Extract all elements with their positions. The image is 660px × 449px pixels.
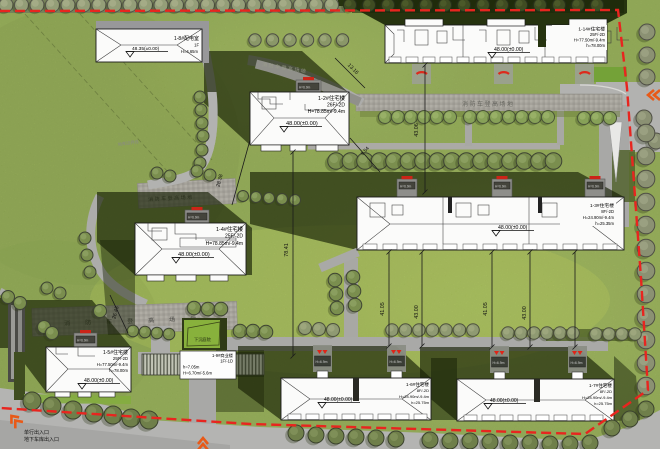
- svg-text:H=77.50m/-9.4m: H=77.50m/-9.4m: [97, 362, 129, 367]
- svg-text:1-4#住宅楼: 1-4#住宅楼: [216, 225, 244, 233]
- svg-text:H=24.90m/-9.4m: H=24.90m/-9.4m: [582, 395, 613, 400]
- svg-text:25F/-2D: 25F/-2D: [113, 356, 128, 361]
- svg-text:8F/-2D: 8F/-2D: [601, 209, 614, 214]
- svg-text:h=25.35m: h=25.35m: [595, 221, 614, 226]
- svg-text:地下车库出入口: 地下车库出入口: [24, 436, 59, 443]
- svg-text:h=25.75m: h=25.75m: [411, 400, 430, 405]
- svg-text:H=24.90m/-9.4m: H=24.90m/-9.4m: [399, 394, 430, 399]
- svg-text:48.00(±0.00): 48.00(±0.00): [498, 225, 528, 231]
- svg-text:1-5#住宅楼: 1-5#住宅楼: [103, 349, 128, 356]
- svg-text:H=77.50m/-9.4m: H=77.50m/-9.4m: [574, 38, 606, 43]
- svg-text:H=78.85m/-9.4m: H=78.85m/-9.4m: [206, 241, 243, 247]
- svg-text:下沉庭院: 下沉庭院: [194, 336, 212, 343]
- svg-text:h=78.00m: h=78.00m: [109, 368, 128, 373]
- svg-text:H=6.70m/-5.6m: H=6.70m/-5.6m: [183, 371, 212, 376]
- svg-text:消防车登高场地: 消防车登高场地: [462, 100, 515, 108]
- svg-text:48.00(±0.00): 48.00(±0.00): [84, 378, 114, 384]
- svg-text:78.41: 78.41: [284, 243, 290, 257]
- svg-text:8F/-2D: 8F/-2D: [600, 389, 612, 394]
- svg-text:8F/-2D: 8F/-2D: [417, 388, 429, 393]
- svg-text:H=78.85m/-9.4m: H=78.85m/-9.4m: [308, 109, 345, 115]
- svg-text:单行出入口: 单行出入口: [24, 429, 49, 436]
- svg-text:h=7.05m: h=7.05m: [183, 365, 200, 370]
- svg-text:48.00(±0.00): 48.00(±0.00): [324, 397, 353, 403]
- svg-text:H=4.65m: H=4.65m: [181, 49, 199, 54]
- svg-text:H=6.9m: H=6.9m: [299, 86, 311, 90]
- svg-text:H=6.9m: H=6.9m: [400, 185, 412, 189]
- svg-text:48.35(±0.00): 48.35(±0.00): [132, 46, 160, 52]
- svg-text:H=6.9m: H=6.9m: [495, 185, 507, 189]
- svg-text:48.00(±0.00): 48.00(±0.00): [490, 398, 519, 404]
- svg-text:25F/-2D: 25F/-2D: [590, 32, 605, 37]
- svg-text:43.00: 43.00: [522, 306, 528, 320]
- svg-text:1-6#住宅楼: 1-6#住宅楼: [406, 381, 429, 388]
- svg-text:H=6.9m: H=6.9m: [77, 339, 89, 343]
- svg-text:48.00(±0.00): 48.00(±0.00): [286, 121, 318, 127]
- svg-text:H=6.9m: H=6.9m: [390, 360, 402, 364]
- svg-text:1F: 1F: [194, 43, 199, 48]
- svg-text:H=6.9m: H=6.9m: [493, 361, 505, 365]
- svg-text:48.00(±0.00): 48.00(±0.00): [178, 252, 210, 258]
- svg-text:25F/-2D: 25F/-2D: [225, 234, 243, 240]
- svg-text:48.00(±0.00): 48.00(±0.00): [494, 47, 524, 53]
- svg-text:41.05: 41.05: [483, 302, 489, 316]
- svg-text:H=6.9m: H=6.9m: [588, 185, 600, 189]
- svg-text:1-8#配电室: 1-8#配电室: [174, 35, 199, 42]
- svg-text:1-2#住宅楼: 1-2#住宅楼: [318, 94, 346, 102]
- svg-text:1F/-1D: 1F/-1D: [220, 359, 233, 364]
- svg-text:1-3#住宅楼: 1-3#住宅楼: [590, 202, 614, 209]
- svg-text:h=25.75m: h=25.75m: [594, 401, 613, 406]
- svg-text:1-7#住宅楼: 1-7#住宅楼: [589, 382, 612, 389]
- svg-text:43.00: 43.00: [414, 305, 420, 319]
- svg-text:h=78.00m: h=78.00m: [586, 43, 605, 48]
- svg-text:H=6.9m: H=6.9m: [571, 361, 583, 365]
- svg-text:41.05: 41.05: [380, 302, 386, 316]
- svg-text:H=24.90m/-9.4m: H=24.90m/-9.4m: [583, 215, 615, 220]
- svg-text:26F/-2D: 26F/-2D: [327, 103, 345, 109]
- svg-text:H=6.9m: H=6.9m: [316, 360, 328, 364]
- svg-text:43.06: 43.06: [414, 123, 420, 137]
- svg-text:H=6.9m: H=6.9m: [188, 216, 200, 220]
